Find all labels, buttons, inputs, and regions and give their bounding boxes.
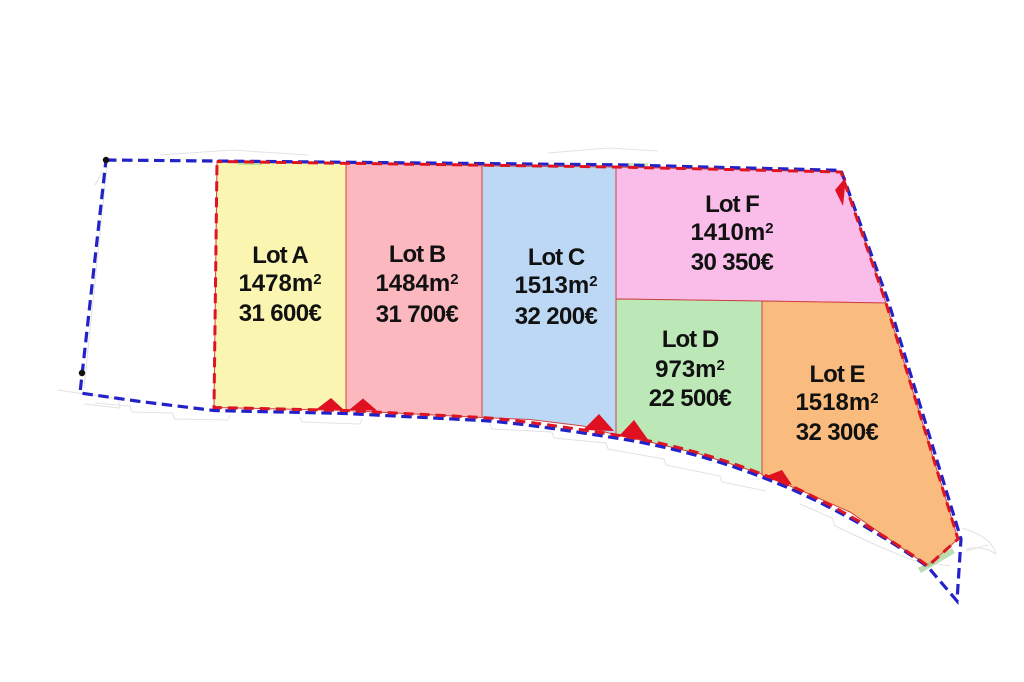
svg-text:Lot B: Lot B <box>389 241 446 268</box>
svg-text:Lot C: Lot C <box>528 244 585 271</box>
svg-text:Lot D: Lot D <box>662 326 719 353</box>
svg-text:1410m2: 1410m2 <box>690 219 773 246</box>
svg-text:32 200€: 32 200€ <box>515 303 598 330</box>
svg-text:22 500€: 22 500€ <box>649 385 732 412</box>
svg-text:1484m2: 1484m2 <box>375 270 458 297</box>
svg-text:32 300€: 32 300€ <box>796 419 879 446</box>
svg-text:Lot F: Lot F <box>705 191 759 218</box>
svg-text:30 350€: 30 350€ <box>691 249 774 276</box>
svg-text:1518m2: 1518m2 <box>795 389 878 416</box>
svg-text:31 700€: 31 700€ <box>376 301 459 328</box>
svg-text:1513m2: 1513m2 <box>514 272 597 299</box>
svg-text:Lot A: Lot A <box>252 242 308 269</box>
svg-text:Lot E: Lot E <box>810 361 866 388</box>
svg-text:1478m2: 1478m2 <box>238 270 321 297</box>
svg-text:973m2: 973m2 <box>655 356 725 383</box>
svg-text:31 600€: 31 600€ <box>239 300 322 327</box>
